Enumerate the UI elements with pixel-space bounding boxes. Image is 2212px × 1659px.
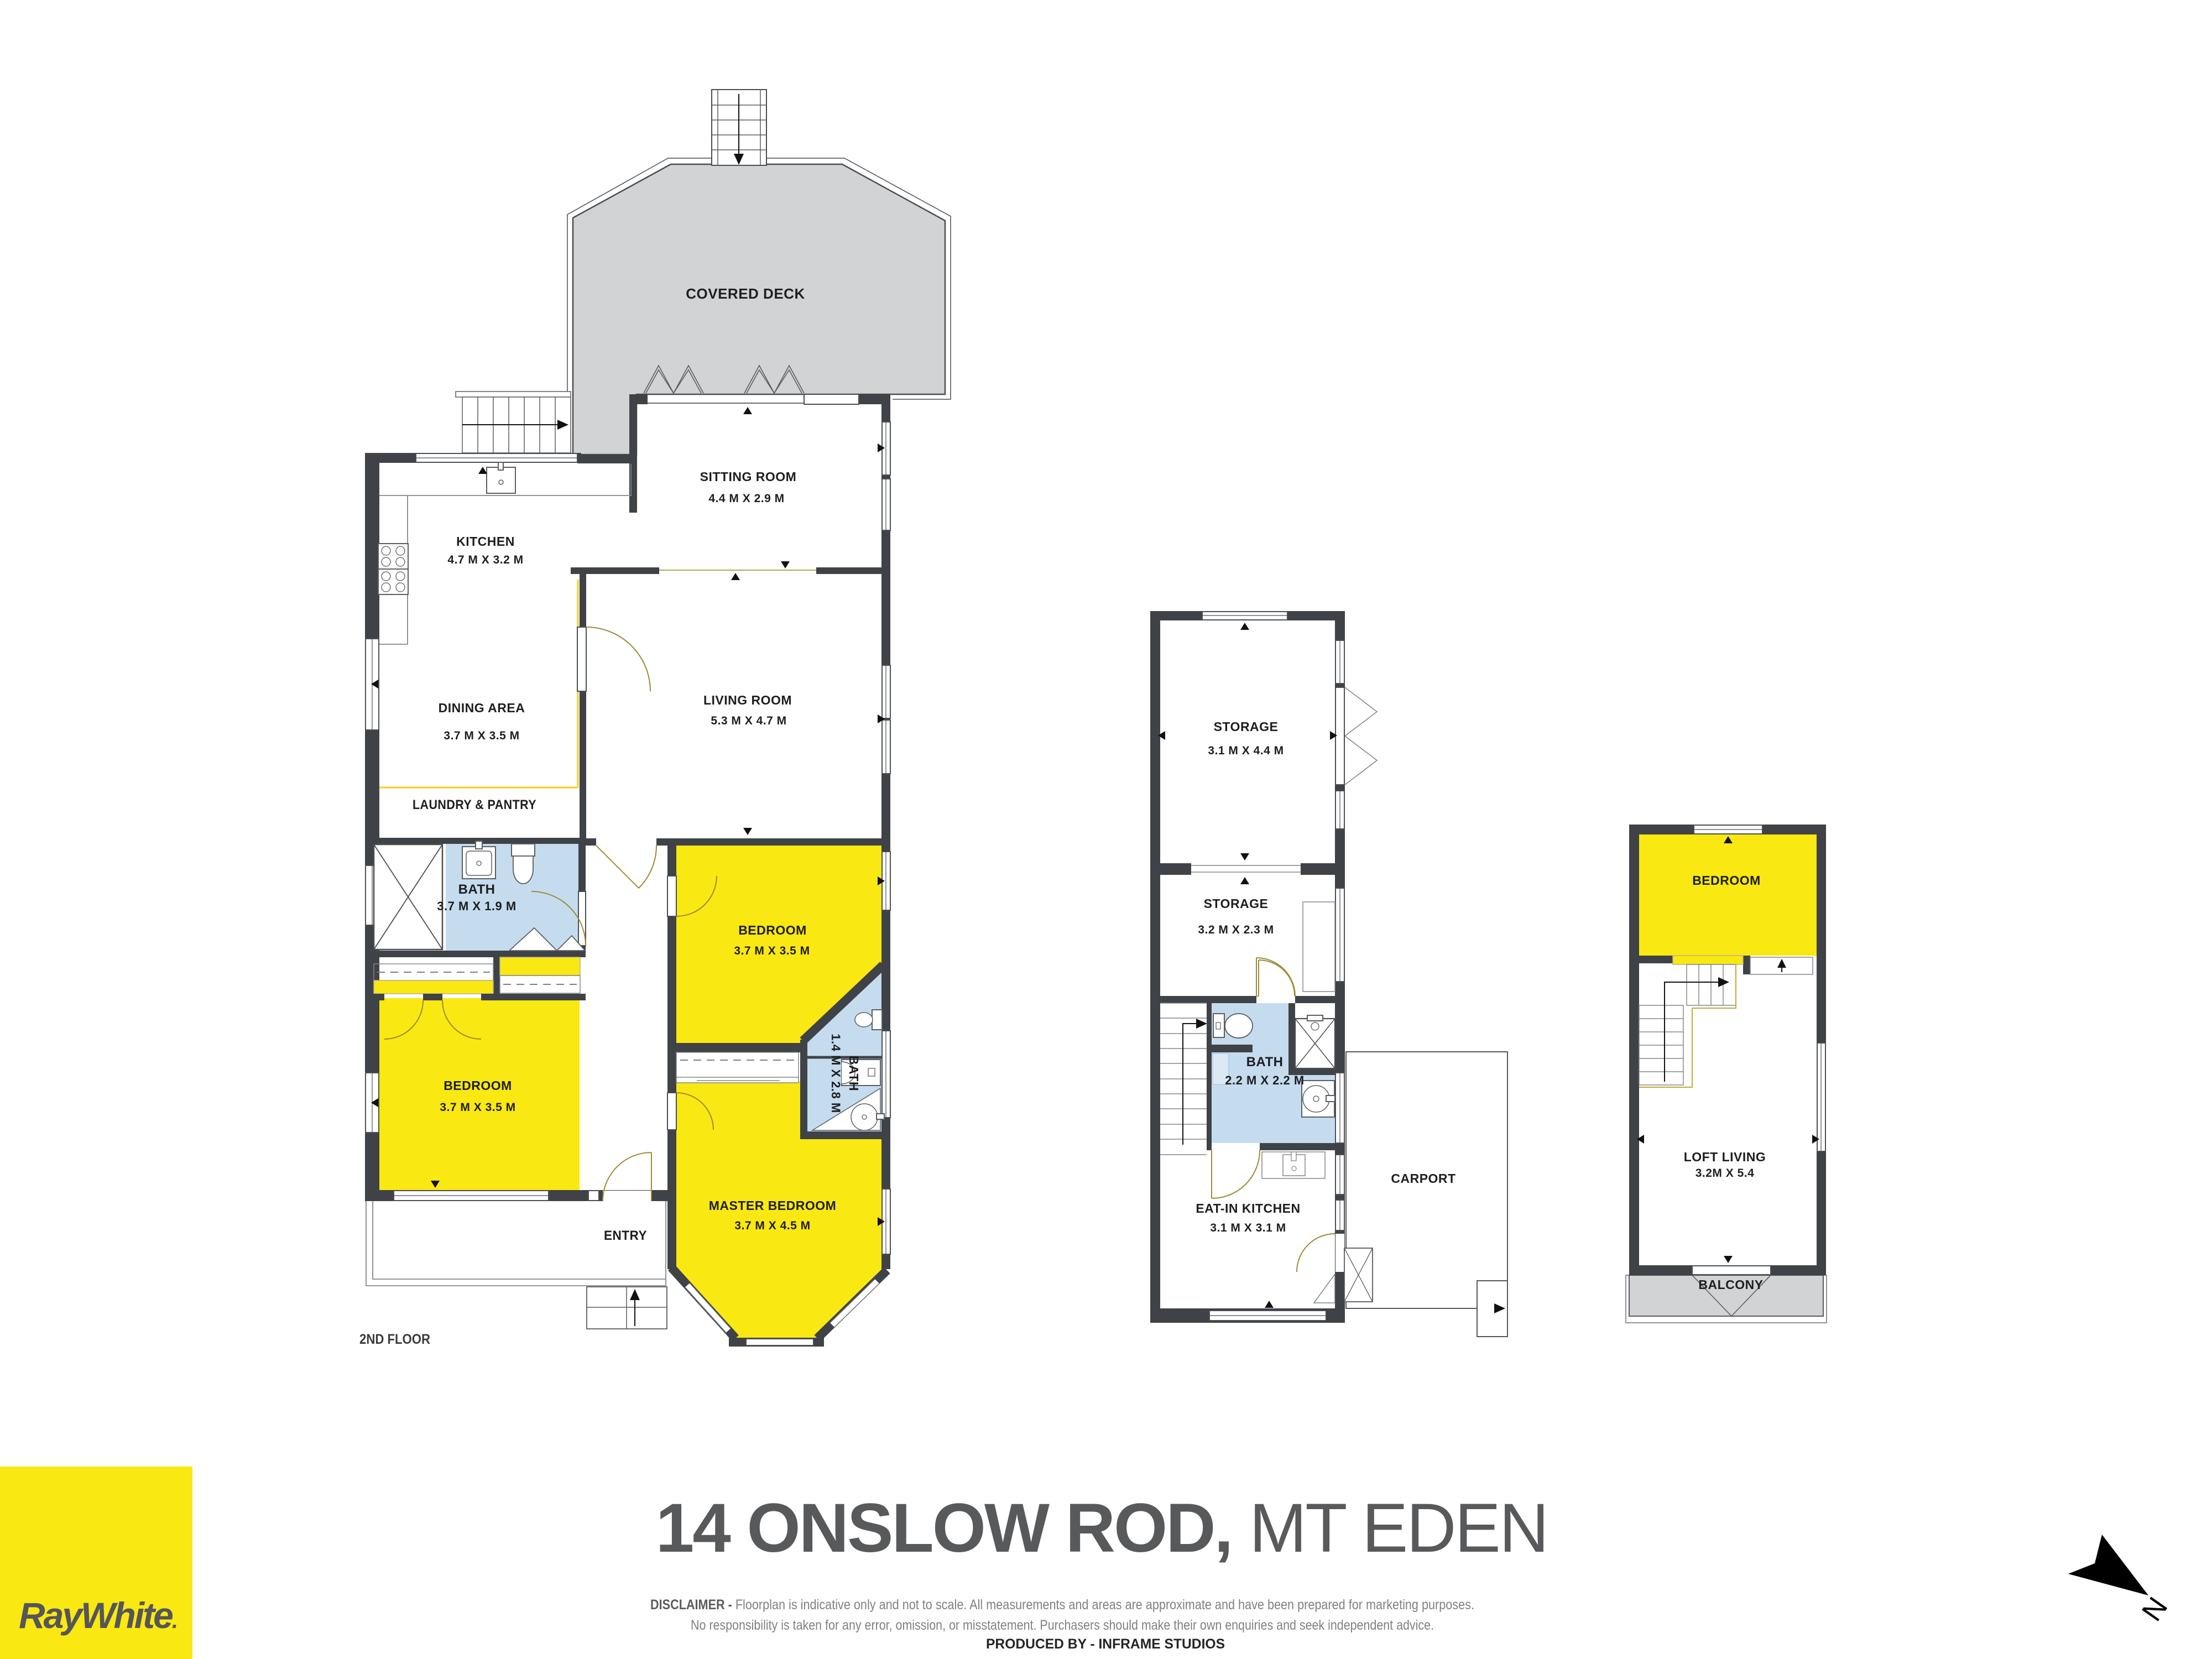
svg-text:4.4 M X 2.9 M: 4.4 M X 2.9 M xyxy=(708,492,784,505)
svg-text:14 ONSLOW ROD, MT EDEN: 14 ONSLOW ROD, MT EDEN xyxy=(656,1490,1547,1567)
svg-text:ENTRY: ENTRY xyxy=(604,1228,647,1243)
svg-text:No responsibility is taken for: No responsibility is taken for any error… xyxy=(691,1618,1434,1633)
svg-text:MASTER BEDROOM: MASTER BEDROOM xyxy=(709,1198,837,1213)
svg-text:KITCHEN: KITCHEN xyxy=(456,534,515,549)
svg-text:DISCLAIMER - Floorplan is indi: DISCLAIMER - Floorplan is indicative onl… xyxy=(650,1597,1474,1613)
svg-text:2ND FLOOR: 2ND FLOOR xyxy=(359,1332,430,1347)
svg-text:STORAGE: STORAGE xyxy=(1214,719,1279,734)
svg-text:3.2 M X 2.3 M: 3.2 M X 2.3 M xyxy=(1198,924,1274,936)
svg-text:BATH: BATH xyxy=(1246,1055,1284,1070)
svg-text:BEDROOM: BEDROOM xyxy=(444,1078,512,1093)
svg-text:BATH: BATH xyxy=(458,882,495,897)
svg-text:SITTING ROOM: SITTING ROOM xyxy=(700,469,797,484)
svg-text:LIVING ROOM: LIVING ROOM xyxy=(703,693,792,707)
svg-text:CARPORT: CARPORT xyxy=(1391,1171,1455,1186)
svg-text:3.1 M X 3.1 M: 3.1 M X 3.1 M xyxy=(1210,1222,1286,1234)
svg-text:3.7 M X 3.5 M: 3.7 M X 3.5 M xyxy=(444,729,519,742)
svg-text:BALCONY: BALCONY xyxy=(1698,1277,1763,1292)
svg-text:EAT-IN KITCHEN: EAT-IN KITCHEN xyxy=(1196,1201,1300,1215)
svg-text:DINING AREA: DINING AREA xyxy=(439,701,525,715)
svg-text:PRODUCED BY - INFRAME STUDIOS: PRODUCED BY - INFRAME STUDIOS xyxy=(986,1636,1225,1652)
svg-text:3.7 M X 3.5 M: 3.7 M X 3.5 M xyxy=(734,945,810,957)
svg-text:STORAGE: STORAGE xyxy=(1204,896,1269,911)
svg-text:4.7 M X 3.2 M: 4.7 M X 3.2 M xyxy=(447,554,523,566)
svg-text:BEDROOM: BEDROOM xyxy=(738,923,807,937)
svg-text:3.2M X 5.4: 3.2M X 5.4 xyxy=(1695,1167,1755,1180)
svg-text:LOFT LIVING: LOFT LIVING xyxy=(1684,1150,1766,1164)
svg-text:3.7 M X 1.9 M: 3.7 M X 1.9 M xyxy=(437,899,516,913)
svg-text:LAUNDRY & PANTRY: LAUNDRY & PANTRY xyxy=(413,797,536,812)
svg-text:BATH: BATH xyxy=(847,1056,861,1091)
svg-text:COVERED DECK: COVERED DECK xyxy=(686,285,805,302)
svg-text:3.7 M X 4.5 M: 3.7 M X 4.5 M xyxy=(734,1219,810,1232)
svg-text:3.1 M X 4.4 M: 3.1 M X 4.4 M xyxy=(1208,744,1284,757)
svg-text:5.3 M X 4.7 M: 5.3 M X 4.7 M xyxy=(711,714,786,727)
svg-text:3.7 M X 3.5 M: 3.7 M X 3.5 M xyxy=(440,1101,515,1114)
svg-text:BEDROOM: BEDROOM xyxy=(1692,873,1761,888)
svg-text:1.4 M X 2.8 M: 1.4 M X 2.8 M xyxy=(829,1034,843,1113)
svg-text:2.2 M X 2.2 M: 2.2 M X 2.2 M xyxy=(1225,1073,1304,1087)
svg-text:RayWhite.: RayWhite. xyxy=(19,1595,178,1636)
